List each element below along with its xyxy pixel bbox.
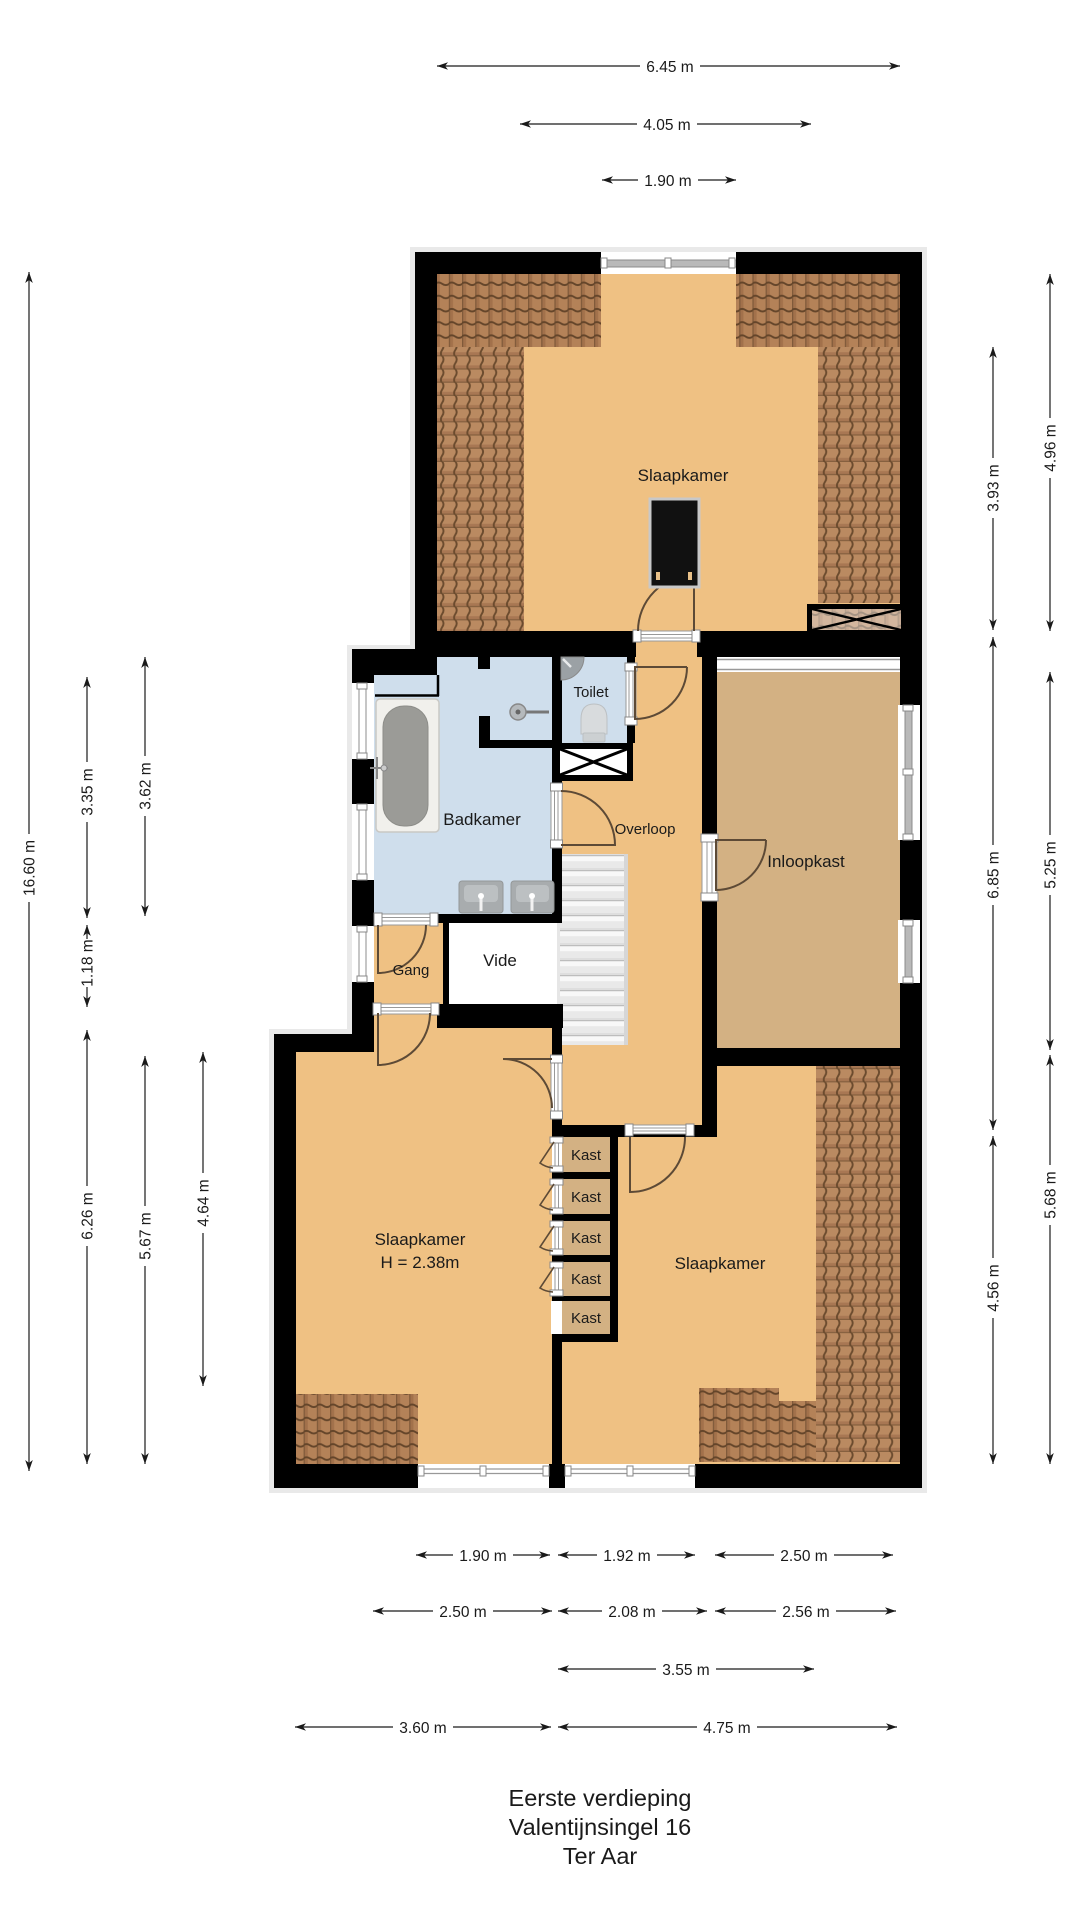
svg-text:3.60 m: 3.60 m [399,1720,446,1737]
svg-text:4.64 m: 4.64 m [196,1179,213,1226]
svg-text:3.62 m: 3.62 m [138,762,155,809]
svg-text:1.90 m: 1.90 m [644,173,691,190]
svg-text:1.92 m: 1.92 m [603,1548,650,1565]
svg-text:Inloopkast: Inloopkast [767,852,845,871]
svg-text:Slaapkamer: Slaapkamer [675,1254,766,1273]
svg-text:Badkamer: Badkamer [443,810,521,829]
svg-text:6.45 m: 6.45 m [646,59,693,76]
svg-text:3.35 m: 3.35 m [80,768,97,815]
svg-text:Slaapkamer: Slaapkamer [638,466,729,485]
svg-text:2.56 m: 2.56 m [782,1604,829,1621]
svg-text:5.67 m: 5.67 m [138,1212,155,1259]
svg-text:Eerste verdieping: Eerste verdieping [509,1785,692,1811]
svg-text:Valentijnsingel 16: Valentijnsingel 16 [509,1814,691,1840]
svg-text:Overloop: Overloop [615,821,676,838]
svg-text:Kast: Kast [571,1147,602,1164]
svg-text:Vide: Vide [483,951,517,970]
svg-text:Toilet: Toilet [573,684,609,701]
svg-text:2.50 m: 2.50 m [780,1548,827,1565]
svg-text:5.25 m: 5.25 m [1043,841,1060,888]
svg-text:4.56 m: 4.56 m [986,1264,1003,1311]
svg-text:6.26 m: 6.26 m [80,1192,97,1239]
svg-text:1.18 m: 1.18 m [80,939,97,986]
svg-text:3.55 m: 3.55 m [662,1662,709,1679]
svg-text:Kast: Kast [571,1271,602,1288]
svg-text:1.90 m: 1.90 m [459,1548,506,1565]
svg-text:2.08 m: 2.08 m [608,1604,655,1621]
svg-text:4.05 m: 4.05 m [643,117,690,134]
svg-text:6.85 m: 6.85 m [986,851,1003,898]
svg-text:3.93 m: 3.93 m [986,464,1003,511]
svg-text:4.96 m: 4.96 m [1043,424,1060,471]
svg-text:H = 2.38m: H = 2.38m [381,1253,460,1272]
svg-text:Kast: Kast [571,1230,602,1247]
svg-text:Slaapkamer: Slaapkamer [375,1230,466,1249]
svg-text:Gang: Gang [393,962,430,979]
svg-text:4.75 m: 4.75 m [703,1720,750,1737]
svg-text:5.68 m: 5.68 m [1043,1171,1060,1218]
svg-text:Kast: Kast [571,1310,602,1327]
svg-text:Kast: Kast [571,1189,602,1206]
svg-text:16.60 m: 16.60 m [22,840,39,896]
svg-text:Ter Aar: Ter Aar [563,1843,638,1869]
svg-text:2.50 m: 2.50 m [439,1604,486,1621]
